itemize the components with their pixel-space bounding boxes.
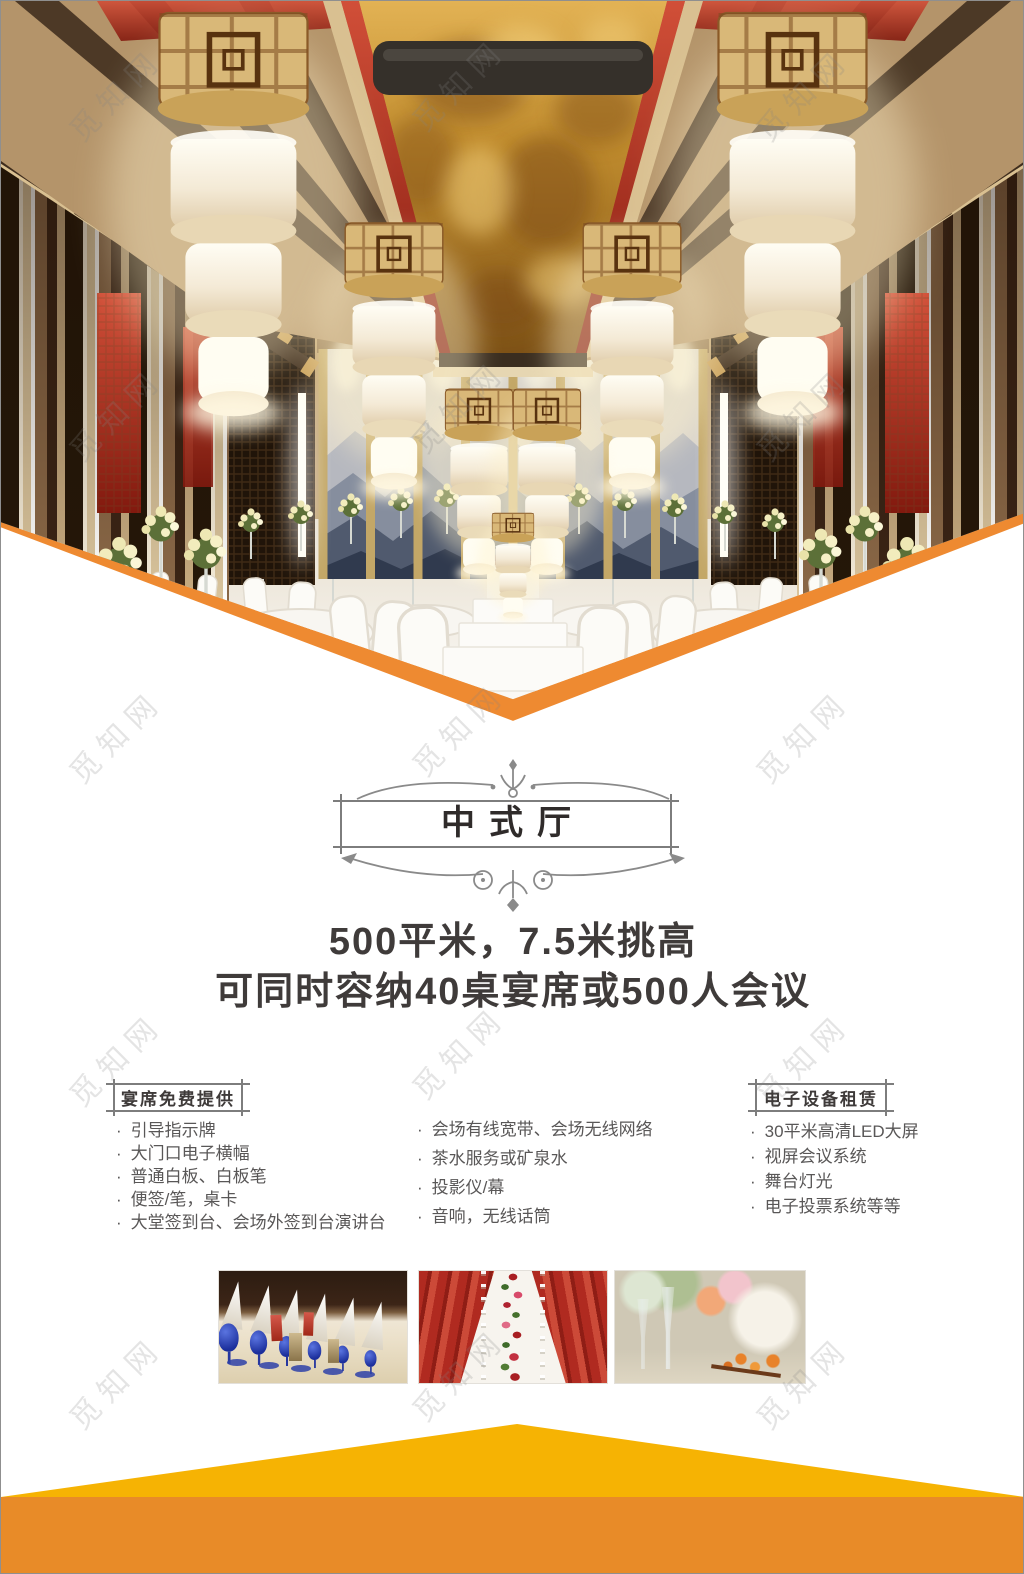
gallery-photo-blue-goblets [219,1271,407,1383]
column-banquet-free: 宴席免费提供 ·引导指示牌 ·大门口电子横幅 ·普通白板、白板笔 ·便签/笔，桌… [106,1083,386,1234]
bullet: · [116,1121,122,1140]
bullet: · [116,1190,122,1209]
bullet: · [750,1197,756,1216]
list-item: ·舞台灯光 [750,1169,919,1194]
list-item: ·便签/笔，桌卡 [116,1188,386,1211]
list-item-text: 会场有线宽带、会场无线网络 [432,1120,653,1139]
banquet-hall-illustration [1,1,1024,723]
frame-tick-right [241,1079,243,1116]
rental-header: 电子设备租赁 [764,1085,878,1110]
headline-line2: 可同时容纳40桌宴席或500人会议 [1,967,1024,1017]
free-items: ·引导指示牌 ·大门口电子横幅 ·普通白板、白板笔 ·便签/笔，桌卡 ·大堂签到… [116,1119,386,1234]
hero-photo [1,1,1024,723]
poster-root: 中式厅 500平米，7.5米挑高 可同时容纳40桌宴席或500人会议 [0,0,1024,1574]
list-item: ·普通白板、白板笔 [116,1165,386,1188]
list-item-text: 音响，无线话筒 [432,1207,551,1226]
bullet: · [417,1207,423,1226]
frame-tick-left [755,1079,757,1116]
free-header: 宴席免费提供 [121,1085,235,1110]
bullet: · [417,1178,423,1197]
list-item-text: 大堂签到台、会场外签到台演讲台 [131,1213,386,1232]
bullet: · [417,1120,423,1139]
list-item: ·投影仪/幕 [417,1173,653,1202]
list-item: ·大门口电子横幅 [116,1142,386,1165]
column-services: ·会场有线宽带、会场无线网络 ·茶水服务或矿泉水 ·投影仪/幕 ·音响，无线话筒 [417,1115,653,1231]
rental-items: ·30平米高清LED大屏 ·视屏会议系统 ·舞台灯光 ·电子投票系统等等 [750,1119,919,1219]
headline-line1: 500平米，7.5米挑高 [1,917,1024,967]
watermark-text: 觅知网 [58,1324,172,1438]
list-item: ·大堂签到台、会场外签到台演讲台 [116,1211,386,1234]
list-item: ·电子投票系统等等 [750,1194,919,1219]
bullet: · [750,1122,756,1141]
list-item-text: 30平米高清LED大屏 [765,1122,919,1141]
ornament-bottom [333,850,693,914]
ornament-top [343,759,683,805]
hall-title: 中式厅 [427,807,585,841]
bottom-orange-band [1,1497,1024,1574]
list-item: ·视屏会议系统 [750,1144,919,1169]
bullet: · [417,1149,423,1168]
bullet: · [116,1144,122,1163]
list-item: ·会场有线宽带、会场无线网络 [417,1115,653,1144]
list-item: ·引导指示牌 [116,1119,386,1142]
list-item-text: 引导指示牌 [131,1121,216,1140]
free-header-frame: 宴席免费提供 [106,1083,250,1112]
list-item: ·音响，无线话筒 [417,1202,653,1231]
bullet: · [750,1147,756,1166]
list-item: ·茶水服务或矿泉水 [417,1144,653,1173]
title-frame: 中式厅 [333,800,679,848]
hero-section [1,1,1024,723]
list-item: ·30平米高清LED大屏 [750,1119,919,1144]
service-items: ·会场有线宽带、会场无线网络 ·茶水服务或矿泉水 ·投影仪/幕 ·音响，无线话筒 [417,1115,653,1231]
list-item-text: 茶水服务或矿泉水 [432,1149,568,1168]
bullet: · [116,1167,122,1186]
bullet: · [116,1213,122,1232]
list-item-text: 舞台灯光 [765,1172,833,1191]
gallery-photo-floral-closeup [615,1271,805,1383]
frame-tick-right [670,794,672,854]
bullet: · [750,1172,756,1191]
headline-section: 500平米，7.5米挑高 可同时容纳40桌宴席或500人会议 [1,917,1024,1017]
list-item-text: 视屏会议系统 [765,1147,867,1166]
gallery-photo-red-chairs [419,1271,607,1383]
frame-tick-right [885,1079,887,1116]
rental-header-frame: 电子设备租赁 [748,1083,894,1112]
list-item-text: 投影仪/幕 [432,1178,505,1197]
list-item-text: 大门口电子横幅 [131,1144,250,1163]
column-equipment-rental: 电子设备租赁 ·30平米高清LED大屏 ·视屏会议系统 ·舞台灯光 ·电子投票系… [748,1083,919,1219]
bottom-yellow-triangle [1,1424,1024,1497]
list-item-text: 便签/笔，桌卡 [131,1190,238,1209]
list-item-text: 电子投票系统等等 [765,1197,901,1216]
frame-tick-left [340,794,342,854]
frame-tick-left [113,1079,115,1116]
list-item-text: 普通白板、白板笔 [131,1167,267,1186]
